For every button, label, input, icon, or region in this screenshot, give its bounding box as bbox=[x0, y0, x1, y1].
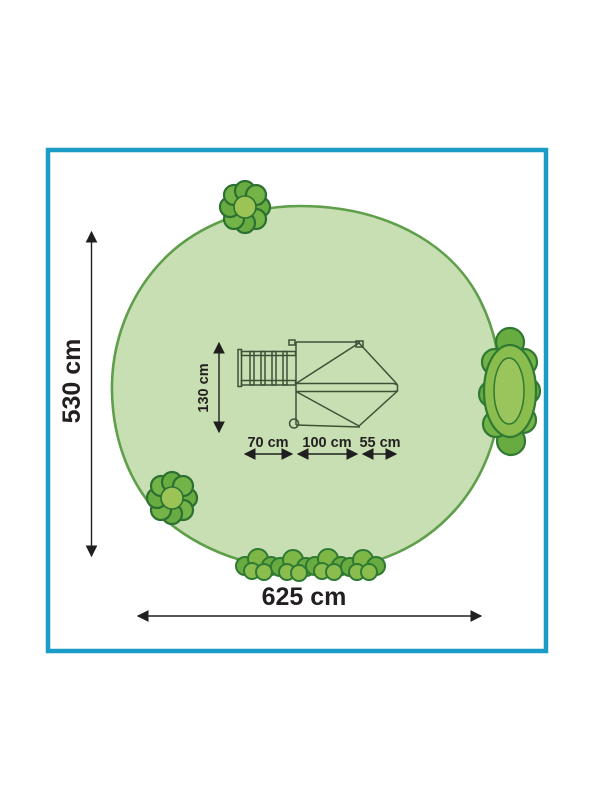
structure-depth-label: 130 cm bbox=[196, 363, 212, 412]
dimension-diagram: 530 cm 625 cm 130 cm 70 cm 100 cm 55 cm bbox=[0, 0, 600, 800]
bush-bottom-left-icon bbox=[147, 472, 197, 524]
ladder-length-label: 70 cm bbox=[247, 435, 288, 451]
platform-width-label: 100 cm bbox=[302, 435, 351, 451]
bush-top-icon bbox=[220, 181, 270, 233]
total-width-label: 625 cm bbox=[262, 583, 347, 611]
total-depth-label: 530 cm bbox=[58, 339, 86, 424]
diagram-canvas: 530 cm 625 cm 130 cm 70 cm 100 cm 55 cm bbox=[0, 0, 600, 800]
roof-overhang-label: 55 cm bbox=[359, 435, 400, 451]
